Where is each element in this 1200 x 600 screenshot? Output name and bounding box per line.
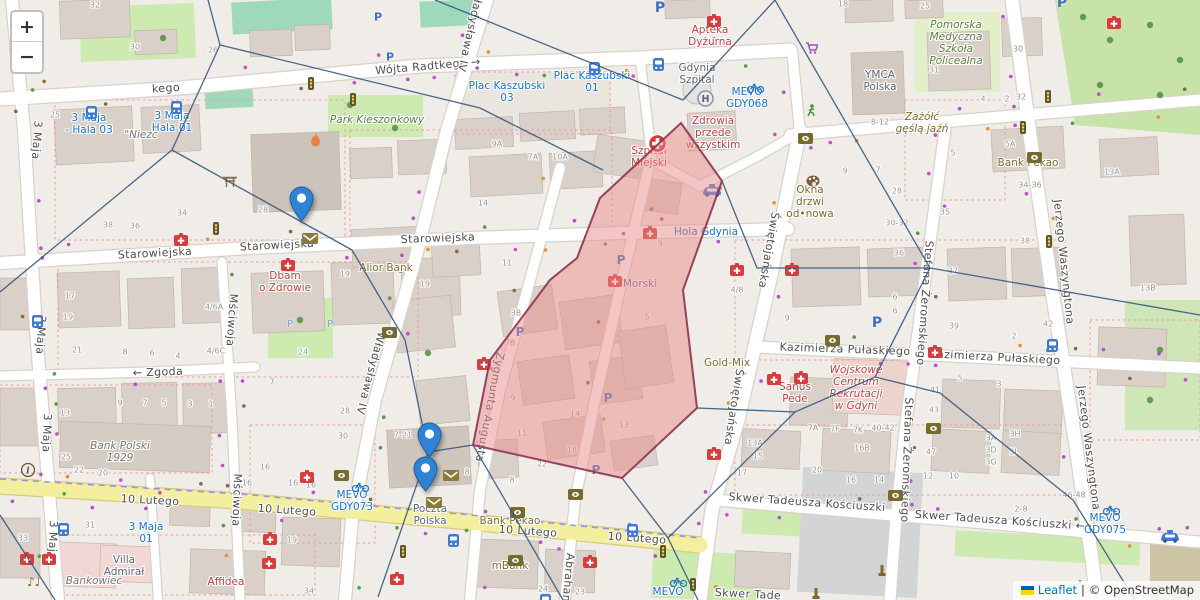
zoom-out-button[interactable]: − xyxy=(12,42,42,72)
map-marker[interactable] xyxy=(289,186,314,222)
zoom-in-button[interactable]: + xyxy=(12,12,42,42)
attribution-separator: | xyxy=(1081,583,1085,597)
map-marker[interactable] xyxy=(413,456,438,492)
map-marker[interactable] xyxy=(417,422,442,458)
zoom-control: + − xyxy=(10,10,44,74)
map-canvas[interactable]: kegoWójta Radtkego →StarowiejskaStarowie… xyxy=(0,0,1200,600)
ukraine-flag-icon xyxy=(1021,586,1034,595)
attribution-bar: Leaflet | © OpenStreetMap xyxy=(1013,581,1200,600)
osm-attribution: © OpenStreetMap xyxy=(1089,583,1194,597)
leaflet-link[interactable]: Leaflet xyxy=(1038,583,1077,597)
map-markers-layer xyxy=(0,0,1200,600)
